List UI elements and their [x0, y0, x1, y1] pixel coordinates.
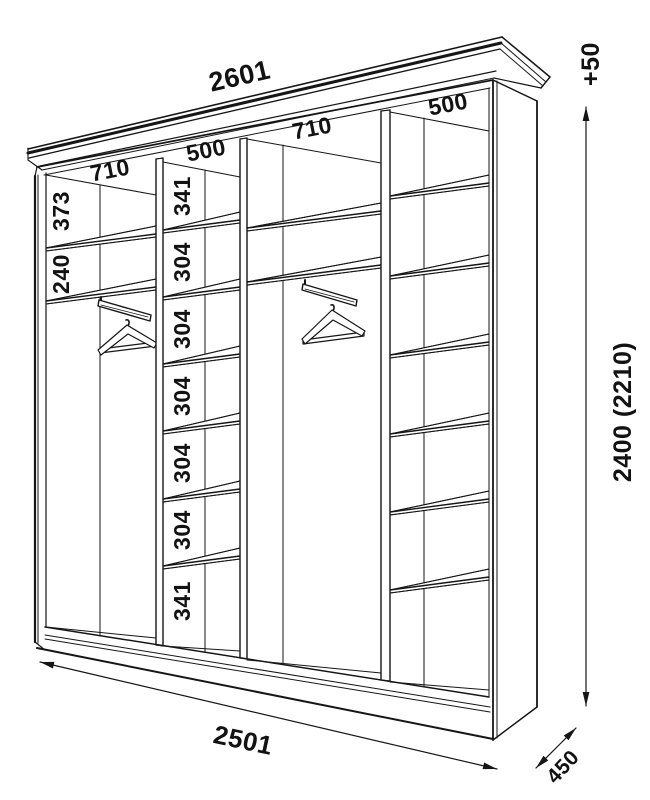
wardrobe-dimension-diagram: 710 500 710 500 373 240 341 304 304 304 … — [0, 0, 650, 800]
partition-3 — [381, 110, 390, 681]
dim-cornice-width: 2601 — [206, 54, 273, 97]
right-clothes-hanger — [302, 305, 365, 344]
wardrobe-drawing: 710 500 710 500 373 240 341 304 304 304 … — [0, 0, 650, 800]
rod-inner-line — [305, 289, 354, 302]
gap-height-label: 341 — [169, 176, 195, 216]
dim-depth: 450 — [534, 726, 584, 789]
right-hanger-rod — [302, 280, 357, 306]
gap-height-label: 304 — [169, 376, 195, 416]
cornice-width-label: 2601 — [206, 54, 273, 97]
cornice-lower-line — [40, 71, 496, 166]
right-column-shelves — [390, 175, 489, 593]
partition-1 — [156, 158, 163, 646]
arrowhead-down — [583, 692, 590, 706]
third-section-shelves — [247, 203, 381, 285]
arrowhead-up — [583, 107, 590, 121]
left-side-panel — [35, 167, 46, 650]
gap-height-label: 304 — [169, 443, 195, 483]
left-gap-labels: 373 240 — [48, 191, 74, 294]
height-label: 2400 (2210) — [609, 342, 637, 482]
shelf-front-edge — [247, 265, 381, 282]
plinth-base — [37, 627, 493, 739]
partition-face — [156, 158, 163, 646]
gable-face — [493, 80, 537, 740]
gap-height-label: 341 — [169, 581, 195, 621]
gap-height-label: 240 — [48, 254, 74, 294]
partition-face — [240, 138, 247, 659]
section-labels: 710 500 710 500 — [88, 87, 470, 186]
dim-height: +50 2400 (2210) — [577, 42, 637, 706]
rod-tube — [98, 300, 151, 321]
gap-height-label: 304 — [169, 309, 195, 349]
arrowhead-left — [39, 659, 54, 669]
gap-height-label: 304 — [169, 242, 195, 282]
partition-face — [381, 110, 390, 681]
shelf-front-edge — [247, 211, 381, 228]
section-width-label: 500 — [426, 87, 470, 120]
left-clothes-hanger — [98, 320, 157, 355]
plinth-top-line — [45, 635, 490, 707]
gap-height-label: 373 — [48, 191, 74, 231]
base-width-label: 2501 — [211, 719, 276, 761]
gap-height-label: 304 — [169, 510, 195, 550]
arrowhead-right — [483, 763, 498, 773]
crown-molding — [28, 37, 550, 170]
left-panel-top — [35, 167, 37, 176]
rod-tube — [302, 284, 357, 306]
cornice-return-line — [501, 43, 546, 82]
plinth-line — [45, 639, 490, 712]
section-width-label: 710 — [290, 111, 334, 144]
middle-gap-labels: 341 304 304 304 304 304 341 — [169, 176, 195, 621]
section-width-label: 710 — [88, 153, 132, 186]
right-side-panel — [493, 80, 537, 740]
height-extra-label: +50 — [577, 42, 605, 86]
partition-2 — [240, 138, 247, 659]
left-hanger-rod — [98, 297, 151, 321]
ceiling-line-third-section — [247, 139, 381, 163]
hanger-arms — [98, 325, 157, 355]
ceiling-line-middle-column — [163, 162, 240, 177]
shelf-front-edge — [46, 234, 156, 248]
depth-label: 450 — [542, 746, 584, 788]
